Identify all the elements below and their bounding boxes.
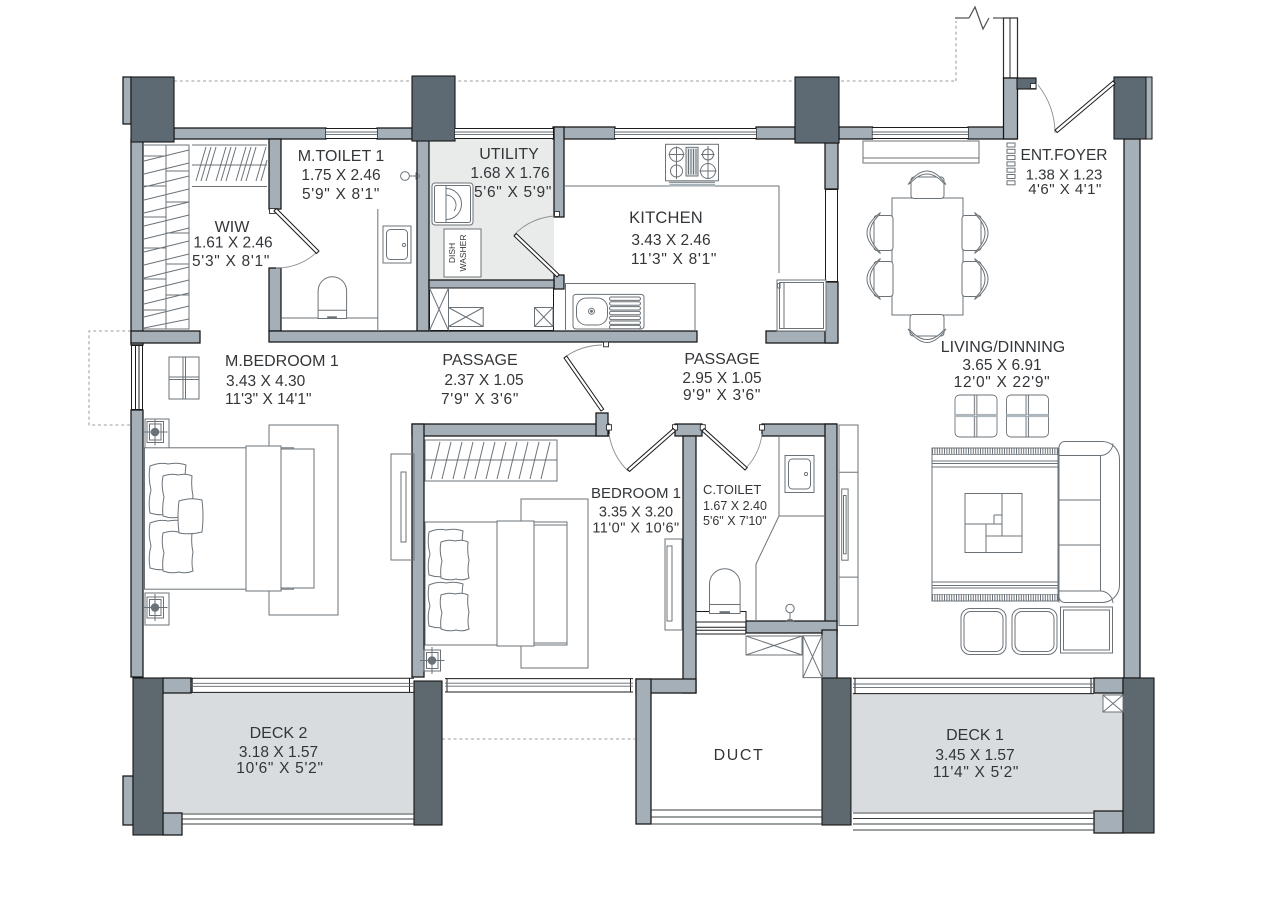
svg-text:LIVING/DINNING: LIVING/DINNING bbox=[941, 339, 1065, 356]
svg-text:PASSAGE: PASSAGE bbox=[442, 352, 517, 369]
svg-text:3.43 X 2.46: 3.43 X 2.46 bbox=[631, 232, 710, 249]
svg-text:1.75 X 2.46: 1.75 X 2.46 bbox=[301, 167, 380, 184]
svg-text:DISH: DISH bbox=[447, 243, 457, 263]
svg-text:4'6" X 4'1": 4'6" X 4'1" bbox=[1028, 181, 1102, 198]
svg-text:2.37 X 1.05: 2.37 X 1.05 bbox=[444, 372, 523, 389]
svg-text:M.TOILET 1: M.TOILET 1 bbox=[298, 148, 385, 165]
svg-text:3.45 X 1.57: 3.45 X 1.57 bbox=[935, 747, 1014, 764]
svg-text:11'3" X 8'1": 11'3" X 8'1" bbox=[631, 251, 717, 268]
svg-text:UTILITY: UTILITY bbox=[479, 146, 539, 163]
svg-text:PASSAGE: PASSAGE bbox=[684, 351, 759, 368]
svg-text:3.65 X 6.91: 3.65 X 6.91 bbox=[962, 357, 1041, 374]
svg-text:7'9" X 3'6": 7'9" X 3'6" bbox=[441, 391, 519, 408]
svg-text:5'6" X 5'9": 5'6" X 5'9" bbox=[474, 184, 552, 201]
svg-text:3.35 X 3.20: 3.35 X 3.20 bbox=[599, 505, 673, 521]
svg-text:10'6" X 5'2": 10'6" X 5'2" bbox=[236, 760, 323, 777]
svg-text:5'9" X 8'1": 5'9" X 8'1" bbox=[302, 186, 380, 203]
svg-text:3.18 X 1.57: 3.18 X 1.57 bbox=[239, 744, 318, 761]
svg-text:1.61 X 2.46: 1.61 X 2.46 bbox=[193, 235, 272, 252]
svg-text:1.67 X 2.40: 1.67 X 2.40 bbox=[703, 499, 767, 513]
svg-text:11'4" X 5'2": 11'4" X 5'2" bbox=[933, 764, 1019, 781]
svg-text:DUCT: DUCT bbox=[714, 747, 765, 764]
svg-text:9'9" X 3'6": 9'9" X 3'6" bbox=[683, 387, 761, 404]
svg-text:11'3" X 14'1": 11'3" X 14'1" bbox=[225, 391, 311, 408]
svg-text:KITCHEN: KITCHEN bbox=[629, 209, 703, 227]
svg-text:1.68 X 1.76: 1.68 X 1.76 bbox=[470, 165, 549, 182]
svg-text:11'0" X 10'6": 11'0" X 10'6" bbox=[592, 521, 679, 537]
svg-text:3.43 X 4.30: 3.43 X 4.30 bbox=[226, 373, 306, 390]
svg-text:M.BEDROOM 1: M.BEDROOM 1 bbox=[225, 353, 339, 370]
svg-text:12'0" X 22'9": 12'0" X 22'9" bbox=[954, 374, 1051, 391]
svg-text:ENT.FOYER: ENT.FOYER bbox=[1021, 147, 1108, 164]
svg-text:5'6" X 7'10": 5'6" X 7'10" bbox=[703, 514, 767, 528]
svg-text:C.TOILET: C.TOILET bbox=[703, 482, 761, 497]
svg-text:5'3" X 8'1": 5'3" X 8'1" bbox=[192, 253, 270, 270]
svg-text:DECK 2: DECK 2 bbox=[250, 725, 308, 742]
svg-text:DECK 1: DECK 1 bbox=[946, 727, 1004, 744]
svg-text:2.95 X 1.05: 2.95 X 1.05 bbox=[682, 370, 761, 387]
svg-text:WIW: WIW bbox=[215, 219, 251, 236]
svg-text:WASHER: WASHER bbox=[458, 235, 468, 272]
svg-text:BEDROOM 1: BEDROOM 1 bbox=[591, 485, 681, 502]
